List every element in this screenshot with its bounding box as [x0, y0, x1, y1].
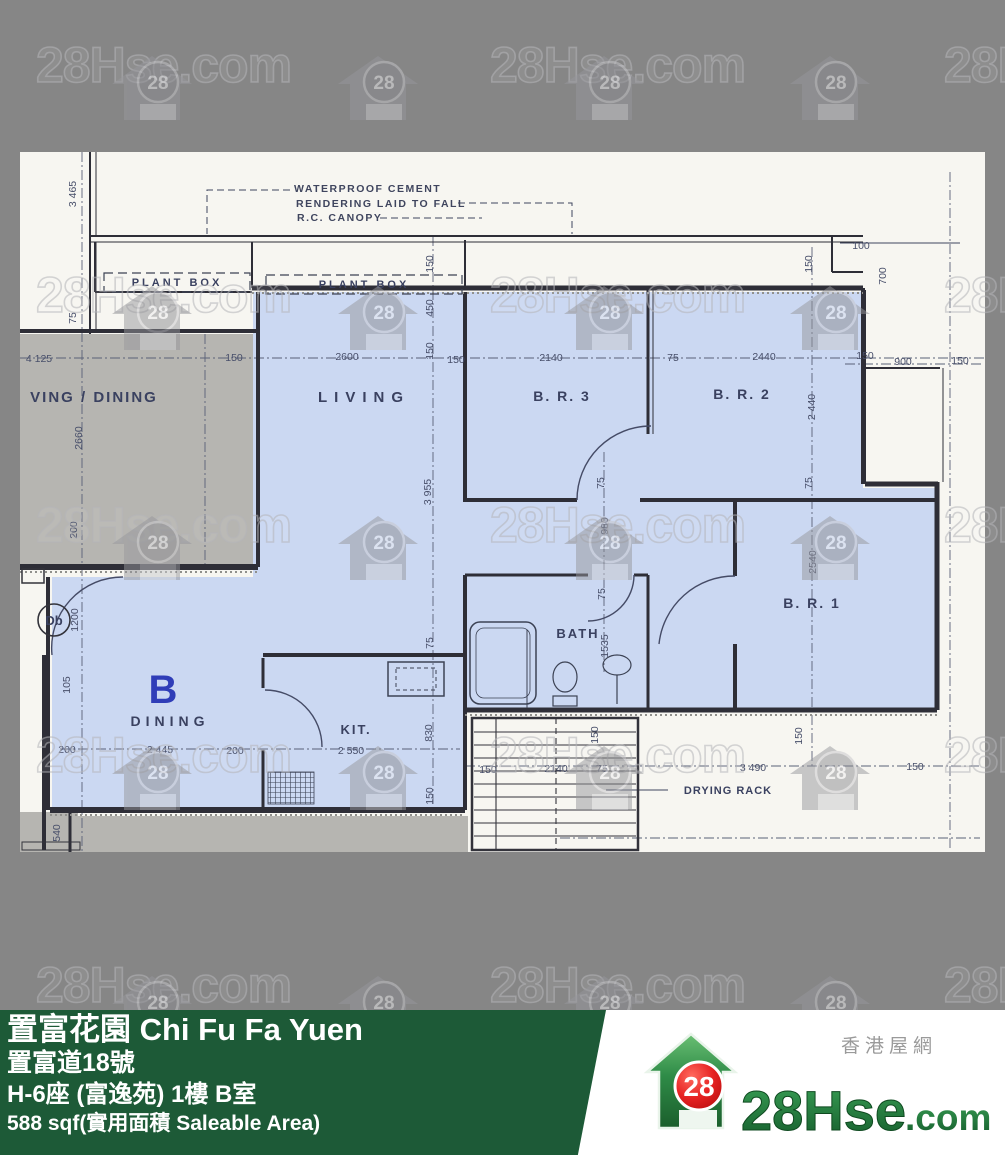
- floor-hatch-patch: [268, 772, 314, 804]
- saleable-area: 588 sqf(實用面積 Saleable Area): [7, 1110, 363, 1138]
- room-label: B. R. 3: [533, 388, 591, 404]
- dimension-label: 830: [423, 724, 435, 742]
- annotation-note: R.C. CANOPY: [297, 212, 382, 224]
- dimension-label: 150: [424, 342, 436, 360]
- block-floor-unit: H-6座 (富逸苑) 1樓 B室: [7, 1079, 363, 1110]
- watermark-text: 28Hse.com: [944, 37, 1005, 93]
- brand-tagline: 香港屋網: [841, 1035, 937, 1057]
- dimension-label: 3 465: [67, 181, 79, 207]
- dimension-label: 150: [906, 761, 924, 773]
- dimension-label: 75: [595, 477, 607, 489]
- dimension-label: 200: [58, 744, 76, 756]
- dimension-label: 150: [803, 255, 815, 273]
- building-name: 置富花園 Chi Fu Fa Yuen: [7, 1012, 363, 1048]
- dimension-label: 2140: [544, 763, 568, 775]
- screenshot-root: LIVINGB. R. 3B. R. 2B. R. 1BATHDININGKIT…: [0, 0, 1005, 1155]
- dimension-label: 200: [226, 745, 244, 757]
- watermark-house-icon: [564, 56, 644, 120]
- watermark-house-icon: [790, 56, 870, 120]
- watermark-text: 28Hse.com: [944, 957, 1005, 1013]
- room-label: LIVING: [318, 389, 410, 406]
- watermark-house-icon: [338, 56, 418, 120]
- floorplan-drawing: LIVINGB. R. 3B. R. 2B. R. 1BATHDININGKIT…: [20, 152, 985, 852]
- dimension-label: 150: [589, 726, 601, 744]
- watermark-text: 28Hse.com: [36, 37, 291, 93]
- dimension-label: 75: [424, 637, 436, 649]
- watermark-text: 28Hse.com: [490, 957, 745, 1013]
- room-label: B. R. 1: [783, 595, 841, 611]
- dimension-label: 4 125: [26, 353, 52, 365]
- dimension-label: 75: [803, 477, 815, 489]
- dimension-label: 2 550: [338, 745, 364, 757]
- dimension-label: 150: [424, 255, 436, 273]
- room-label: DRYING RACK: [684, 785, 772, 797]
- annotation-note: WATERPROOF CEMENT: [294, 183, 441, 195]
- dimension-label: 75: [596, 763, 608, 775]
- dimension-label: 150: [479, 764, 497, 776]
- dimension-label: 2600: [335, 351, 359, 363]
- dimension-label: 150: [951, 355, 969, 367]
- dimension-label: 150: [225, 352, 243, 364]
- brand-wordmark: 28Hse .com: [741, 1079, 991, 1142]
- dimension-label: 3 490: [740, 762, 766, 774]
- dimension-label: 75: [67, 312, 79, 324]
- dimension-label: 2540: [807, 550, 819, 574]
- lightwell-fill: [865, 290, 940, 482]
- dimension-label: 150: [447, 354, 465, 366]
- dimension-label: 1200: [69, 608, 81, 632]
- dimension-label: 150: [424, 787, 436, 805]
- dimension-label: 450: [424, 299, 436, 317]
- dimension-label: 150: [793, 727, 805, 745]
- dimension-label: 700: [877, 267, 889, 285]
- dimension-label: 2 445: [147, 744, 173, 756]
- dimension-label: 75: [667, 352, 679, 364]
- annotation-note: RENDERING LAID TO FALL: [296, 198, 466, 210]
- dimension-label: 100: [852, 240, 870, 252]
- property-info: 置富花園 Chi Fu Fa Yuen 置富道18號 H-6座 (富逸苑) 1樓…: [7, 1012, 363, 1138]
- dimension-label: 3 955: [422, 479, 434, 505]
- door-bell-label: Db: [45, 613, 62, 628]
- 28hse-brand-panel: 香港屋網 28 28Hse .com: [637, 1010, 997, 1155]
- dimension-label: 2 440: [806, 394, 818, 420]
- watermark-house-icon: [112, 56, 192, 120]
- room-label: DINING: [131, 713, 210, 729]
- room-label: KIT.: [340, 722, 371, 737]
- room-label: B. R. 2: [713, 386, 771, 402]
- brand-name-main: 28Hse: [741, 1079, 906, 1142]
- dimension-label: 200: [68, 521, 80, 539]
- dimension-label: 2440: [752, 351, 776, 363]
- room-label: PLANT BOX: [319, 279, 410, 291]
- room-label: PLANT BOX: [132, 277, 223, 289]
- watermark-text: 28Hse.com: [490, 37, 745, 93]
- floorplan-scan: LIVINGB. R. 3B. R. 2B. R. 1BATHDININGKIT…: [20, 152, 985, 852]
- room-label: BATH: [556, 626, 599, 641]
- brand-name-suffix: .com: [905, 1097, 991, 1138]
- unit-b-label: B: [149, 668, 178, 712]
- dimension-label: 105: [61, 676, 73, 694]
- dimension-label: 1535: [599, 634, 611, 658]
- dimension-label: 75: [596, 588, 608, 600]
- watermark-text: 28Hse.com: [36, 957, 291, 1013]
- 28hse-logo-house-icon: 28: [647, 1034, 735, 1128]
- street-address: 置富道18號: [7, 1048, 363, 1079]
- dimension-label: 150: [856, 350, 874, 362]
- footer-info-bar: 置富花園 Chi Fu Fa Yuen 置富道18號 H-6座 (富逸苑) 1樓…: [0, 1010, 1005, 1155]
- dimension-label: 900: [894, 356, 912, 368]
- dimension-label: 2660: [73, 426, 85, 450]
- room-label: VING / DINING: [30, 389, 158, 406]
- logo-badge: 28: [683, 1071, 714, 1102]
- dimension-label: 2140: [539, 352, 563, 364]
- dimension-label: 540: [51, 824, 63, 842]
- dimension-label: 980: [599, 517, 611, 535]
